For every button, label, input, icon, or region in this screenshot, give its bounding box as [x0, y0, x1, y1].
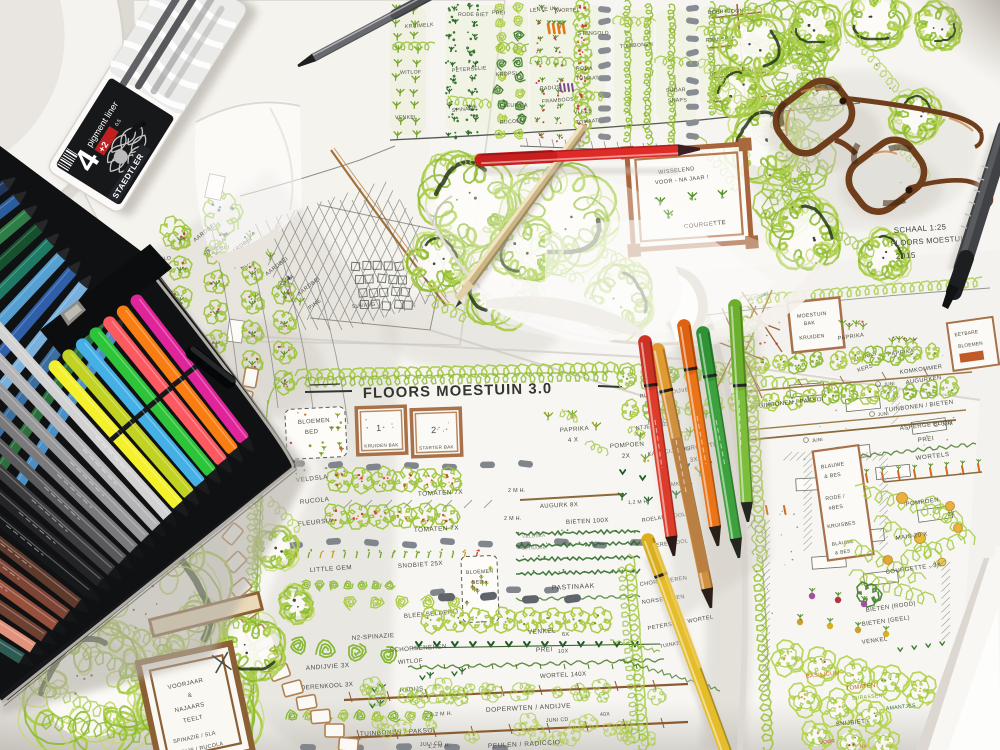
svg-text:STENGOLD: STENGOLD [578, 30, 609, 37]
svg-text:PREI: PREI [492, 10, 505, 16]
svg-text:2X: 2X [947, 511, 955, 518]
svg-text:NA: NA [860, 743, 868, 750]
svg-text:2X: 2X [622, 452, 631, 460]
svg-text:BAK: BAK [804, 320, 816, 327]
svg-text:WITLOF: WITLOF [400, 70, 422, 76]
svg-text:VENKEL: VENKEL [395, 115, 417, 121]
svg-text:1,2 M H.: 1,2 M H. [430, 711, 453, 718]
svg-text:RODE BIET: RODE BIET [458, 12, 489, 18]
svg-text:VENKEL: VENKEL [528, 628, 557, 636]
svg-text:ROMA: ROMA [576, 66, 593, 72]
svg-text:2: 2 [431, 425, 437, 435]
svg-text:PREI: PREI [536, 646, 553, 654]
svg-text:1: 1 [376, 423, 382, 433]
svg-text:SNAPS: SNAPS [668, 97, 687, 104]
svg-text:SUGAR: SUGAR [666, 87, 686, 94]
svg-text:TOMAAT: TOMAAT [576, 75, 600, 82]
svg-text:1,2 M H.: 1,2 M H. [428, 743, 451, 750]
svg-text:2 M H.: 2 M H. [508, 488, 526, 494]
svg-text:4 X: 4 X [568, 436, 579, 444]
svg-text:2015: 2015 [896, 251, 917, 261]
svg-text:10X: 10X [558, 648, 569, 655]
svg-text:2 M H.: 2 M H. [504, 516, 522, 522]
svg-text:6X: 6X [562, 632, 570, 638]
svg-text:WORTEL: WORTEL [556, 7, 580, 14]
svg-text:1,2 M H: 1,2 M H [628, 499, 648, 506]
svg-text:BED: BED [305, 429, 319, 436]
svg-text:RADIJS: RADIJS [540, 85, 561, 92]
svg-text:FLEURSIA: FLEURSIA [500, 103, 528, 109]
